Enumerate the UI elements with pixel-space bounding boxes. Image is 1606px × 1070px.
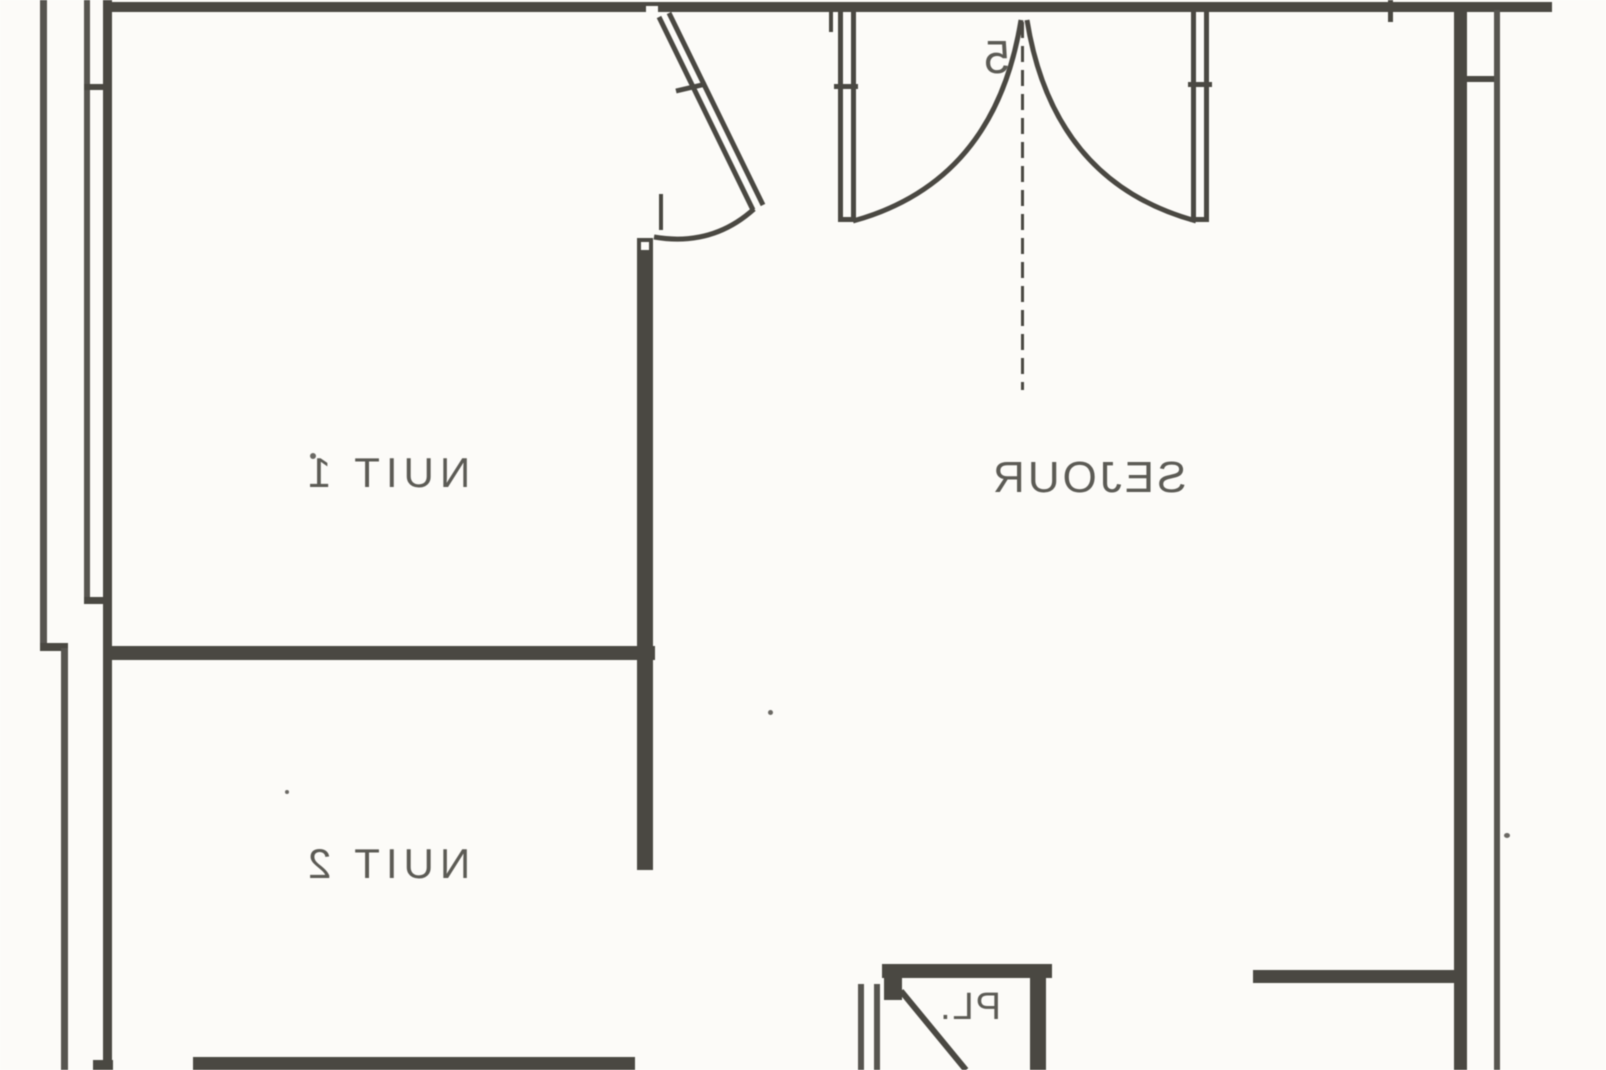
entry-door-leaf-tick xyxy=(676,84,706,91)
floor-plan: NUIT 1 NUIT 2 SEJOUR PL. 5 xyxy=(0,0,1606,1070)
door-annotation-mark: 5 xyxy=(984,34,1010,80)
scan-speck xyxy=(310,453,316,459)
scan-speck xyxy=(285,790,289,794)
room-label-nuit2: NUIT 2 xyxy=(302,843,470,885)
plan-curves xyxy=(0,0,1606,1070)
entry-door-leaf-line-b xyxy=(669,13,763,205)
french-door-right-swing-arc xyxy=(1027,20,1196,221)
entry-door-leaf-line-a xyxy=(659,17,753,210)
room-label-placard: PL. xyxy=(938,988,1001,1026)
entry-door-swing-arc xyxy=(654,209,754,239)
scan-speck xyxy=(768,710,773,715)
scan-speck xyxy=(1504,833,1510,838)
room-label-nuit1: NUIT 1 xyxy=(302,452,470,494)
room-label-sejour: SEJOUR xyxy=(990,456,1186,500)
